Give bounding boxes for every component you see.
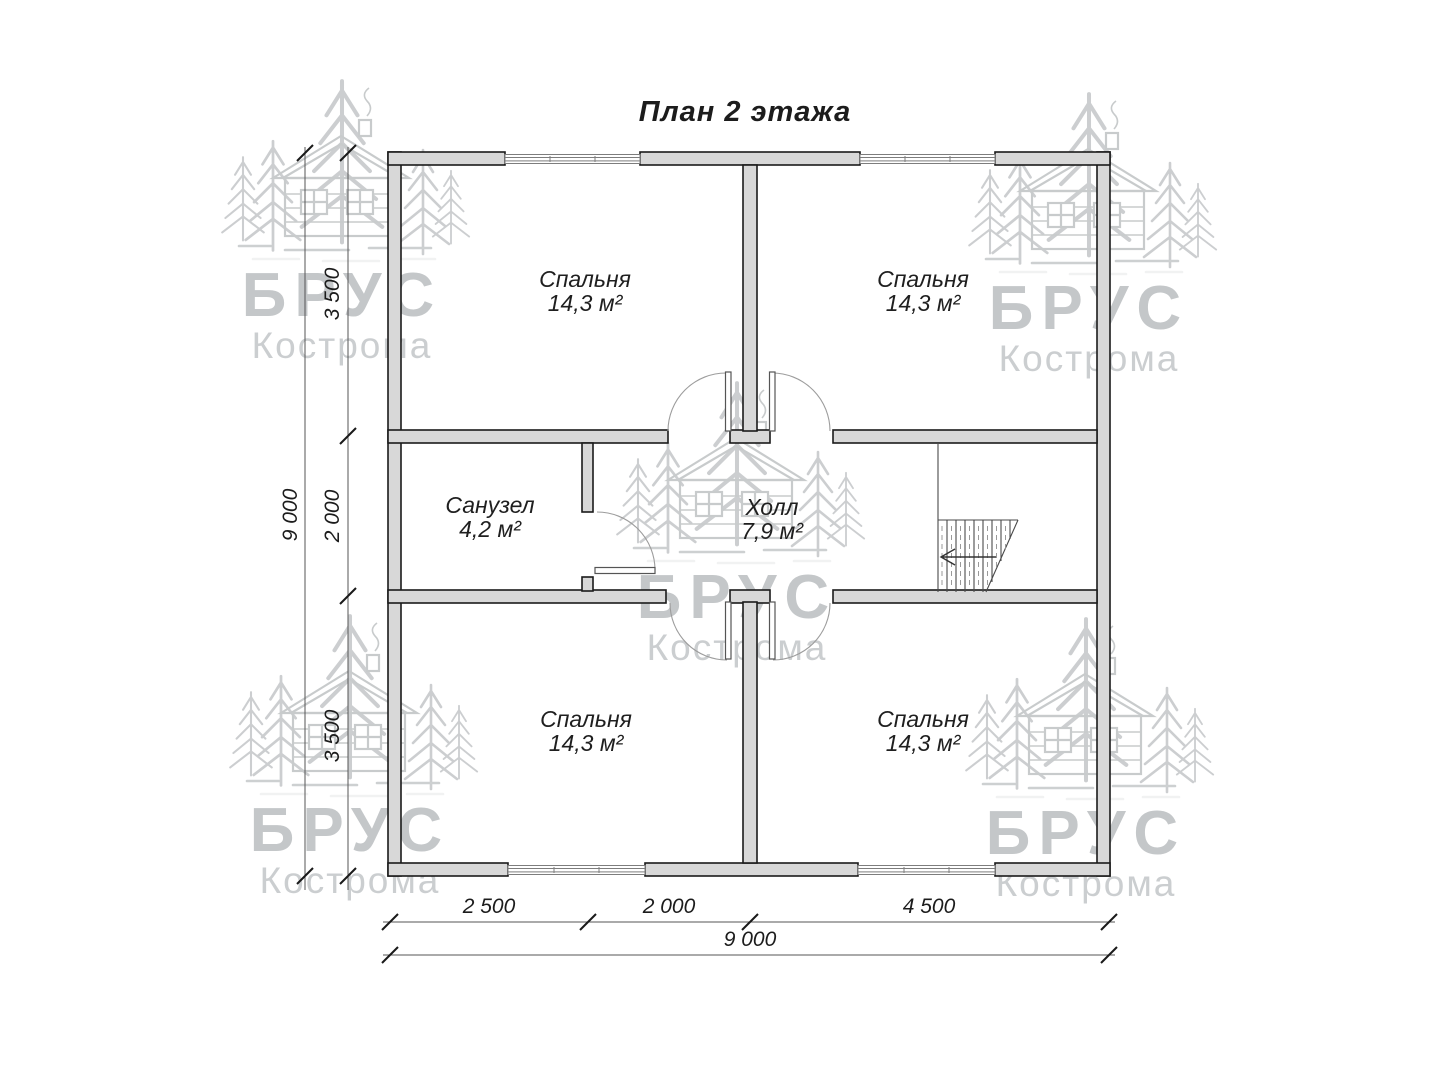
room-label-bathroom: Санузел 4,2 м² (445, 493, 534, 541)
wall-center-top (743, 165, 757, 431)
room-label-bedroom-bottom-left: Спальня 14,3 м² (540, 707, 632, 755)
plan-title: План 2 этажа (639, 97, 852, 127)
window-top-right (860, 155, 995, 164)
room-name: Спальня (540, 707, 632, 731)
wall-outer-top (995, 152, 1110, 165)
window-top-left (505, 155, 640, 164)
floor-plan-page: БРУС Кострома (0, 0, 1440, 1080)
room-area: 14,3 м² (877, 291, 969, 315)
watermark-top-right (964, 94, 1216, 393)
dim-label-left-segment-3: 3 500 (321, 710, 345, 763)
wall-outer-bottom (995, 863, 1110, 876)
wall-outer-top (640, 152, 860, 165)
wall-bathroom-right (582, 577, 593, 591)
room-label-bedroom-top-right: Спальня 14,3 м² (877, 267, 969, 315)
room-area: 14,3 м² (540, 731, 632, 755)
wall-outer-bottom (388, 863, 508, 876)
wall-hall-top (388, 430, 668, 443)
wall-outer-right (1097, 152, 1110, 876)
window-bottom-right (858, 866, 995, 875)
wall-hall-top (730, 430, 770, 443)
room-area: 14,3 м² (877, 731, 969, 755)
dim-label-left-segment-1: 3 500 (321, 268, 345, 321)
wall-bathroom-right (582, 443, 593, 512)
staircase (938, 443, 1018, 592)
floor-plan-canvas: БРУС Кострома (0, 0, 1440, 1080)
stair-cut-line (986, 520, 1018, 592)
door-bedroom-top-left (668, 372, 731, 431)
room-label-hall: Холл 7,9 м² (741, 495, 803, 543)
room-name: Холл (741, 495, 803, 519)
room-label-bedroom-top-left: Спальня 14,3 м² (539, 267, 631, 315)
dim-label-bottom-total: 9 000 (724, 929, 777, 951)
dim-label-left-segment-2: 2 000 (321, 490, 345, 543)
room-name: Санузел (445, 493, 534, 517)
wall-hall-top (833, 430, 1097, 443)
watermark-layer (217, 81, 1216, 918)
door-bedroom-top-right (770, 372, 831, 431)
room-area: 4,2 м² (445, 517, 534, 541)
room-label-bedroom-bottom-right: Спальня 14,3 м² (877, 707, 969, 755)
room-area: 7,9 м² (741, 519, 803, 543)
wall-outer-left (388, 152, 401, 876)
window-bottom-left (508, 866, 645, 875)
wall-outer-top (388, 152, 505, 165)
dim-label-bottom-segment-1: 2 500 (463, 896, 516, 918)
room-name: Спальня (877, 267, 969, 291)
room-area: 14,3 м² (539, 291, 631, 315)
room-name: Спальня (539, 267, 631, 291)
wall-center-bottom (743, 602, 757, 863)
dim-label-left-total: 9 000 (279, 489, 303, 542)
watermark-top-left (217, 81, 469, 380)
wall-hall-bottom (388, 590, 666, 603)
watermark-center (612, 383, 864, 682)
room-name: Спальня (877, 707, 969, 731)
dim-label-bottom-segment-2: 2 000 (643, 896, 696, 918)
wall-hall-bottom (730, 590, 770, 603)
dim-label-bottom-segment-3: 4 500 (903, 896, 956, 918)
wall-outer-bottom (645, 863, 858, 876)
